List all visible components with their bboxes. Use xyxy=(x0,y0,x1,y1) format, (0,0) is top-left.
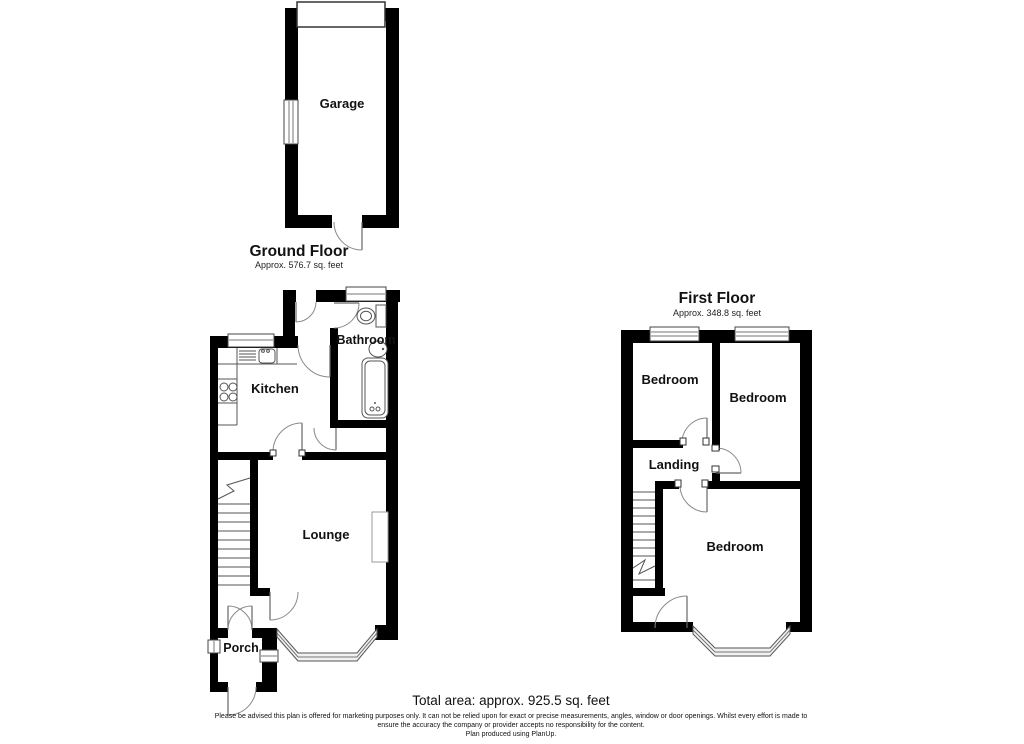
disclaimer-line-2: ensure the accuracy the company or provi… xyxy=(377,722,644,729)
garage-walls xyxy=(285,8,399,228)
kitchen-window-icon xyxy=(228,334,274,347)
first-floor-title: First Floor xyxy=(679,290,756,307)
rear-window-icon xyxy=(346,287,386,301)
staircase-first xyxy=(633,492,655,580)
porch-label: Porch xyxy=(223,641,258,655)
plan-credit: Plan produced using PlanUp. xyxy=(466,731,557,738)
rear-door-icon xyxy=(296,302,316,322)
garage-plan: Garage xyxy=(284,2,399,250)
bedroom-right-label: Bedroom xyxy=(729,390,786,405)
bay-window-first-icon xyxy=(693,626,790,656)
hall-lounge-door-icon xyxy=(270,592,298,620)
kitchen-door-icon xyxy=(298,345,330,377)
total-area-label: Total area: approx. 925.5 sq. feet xyxy=(412,693,610,708)
garage-label: Garage xyxy=(320,96,365,111)
bedroom-front-door-icon xyxy=(675,480,708,512)
sink-icon xyxy=(259,349,275,363)
ground-floor-area: Approx. 576.7 sq. feet xyxy=(255,260,344,270)
ground-floor-plan: Kitchen Bathroom Lounge Porch xyxy=(208,287,400,715)
bay-window-icon xyxy=(277,629,377,661)
hob-icon xyxy=(220,383,237,401)
first-floor-plan: Bedroom Bedroom Landing Bedroom xyxy=(621,327,812,656)
bedroom-left-label: Bedroom xyxy=(641,372,698,387)
porch-window-left-icon xyxy=(208,640,220,653)
toilet-icon xyxy=(357,305,386,327)
chimney-recess xyxy=(372,512,388,562)
bathroom-label: Bathroom xyxy=(336,333,395,347)
floorplan-page: Garage Ground Floor Approx. 576.7 sq. fe… xyxy=(0,0,1024,744)
inner-hall-door-icon xyxy=(314,428,336,450)
bedroom-front-label: Bedroom xyxy=(706,539,763,554)
floorplan-drawing: Garage Ground Floor Approx. 576.7 sq. fe… xyxy=(0,0,1024,744)
porch-inner-doors-icon xyxy=(228,606,252,630)
staircase-ground xyxy=(218,478,250,585)
kitchen-label: Kitchen xyxy=(251,381,299,396)
bedroom-left-door-icon xyxy=(680,418,709,445)
porch-window-right-icon xyxy=(260,650,278,662)
bedroom-window-right-icon xyxy=(735,327,789,341)
bathtub-icon xyxy=(362,358,388,418)
landing-label: Landing xyxy=(649,457,700,472)
front-door-icon xyxy=(228,687,256,715)
lounge-label: Lounge xyxy=(303,527,350,542)
bedroom-right-door-icon xyxy=(712,445,741,473)
bedroom-window-left-icon xyxy=(650,327,699,341)
drainer-icon xyxy=(239,351,256,360)
first-floor-area: Approx. 348.8 sq. feet xyxy=(673,308,762,318)
footer: Total area: approx. 925.5 sq. feet Pleas… xyxy=(215,693,808,738)
lounge-door-icon xyxy=(270,423,305,456)
disclaimer-line-1: Please be advised this plan is offered f… xyxy=(215,713,808,720)
garage-door-icon xyxy=(297,2,385,27)
ground-floor-title: Ground Floor xyxy=(249,243,348,260)
garage-window-icon xyxy=(284,100,298,144)
